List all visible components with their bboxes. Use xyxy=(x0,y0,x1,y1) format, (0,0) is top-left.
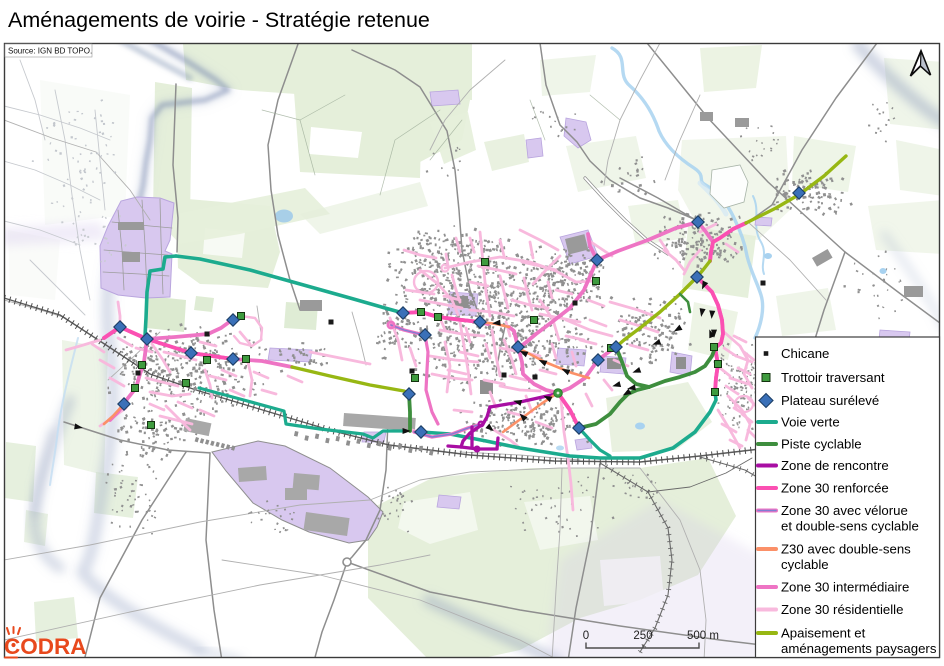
svg-text:0: 0 xyxy=(583,630,589,642)
svg-text:Zone de rencontre: Zone de rencontre xyxy=(781,458,889,473)
svg-text:Zone 30 renforcée: Zone 30 renforcée xyxy=(781,481,889,496)
svg-text:Voie verte: Voie verte xyxy=(781,415,840,430)
svg-text:Plateau surélevé: Plateau surélevé xyxy=(781,393,879,408)
svg-text:CODRA: CODRA xyxy=(4,634,87,659)
svg-text:cyclable: cyclable xyxy=(781,557,829,572)
svg-text:500 m: 500 m xyxy=(687,630,719,642)
svg-text:Z30 avec double-sens: Z30 avec double-sens xyxy=(781,542,911,557)
svg-text:Zone 30 avec vélorue: Zone 30 avec vélorue xyxy=(781,503,908,518)
svg-text:Trottoir traversant: Trottoir traversant xyxy=(781,370,885,385)
svg-text:aménagements paysagers: aménagements paysagers xyxy=(781,641,937,656)
svg-text:Zone 30 résidentielle: Zone 30 résidentielle xyxy=(781,602,903,617)
svg-text:Source: IGN BD TOPO.: Source: IGN BD TOPO. xyxy=(8,47,92,56)
svg-text:Apaisement et: Apaisement et xyxy=(781,626,866,641)
svg-text:Zone 30 intermédiaire: Zone 30 intermédiaire xyxy=(781,580,909,595)
svg-text:Aménagements de voirie - Strat: Aménagements de voirie - Stratégie reten… xyxy=(8,8,430,32)
svg-text:250: 250 xyxy=(633,630,652,642)
svg-text:Chicane: Chicane xyxy=(781,346,829,361)
svg-text:et double-sens cyclable: et double-sens cyclable xyxy=(781,519,919,534)
svg-text:Piste cyclable: Piste cyclable xyxy=(781,437,862,452)
